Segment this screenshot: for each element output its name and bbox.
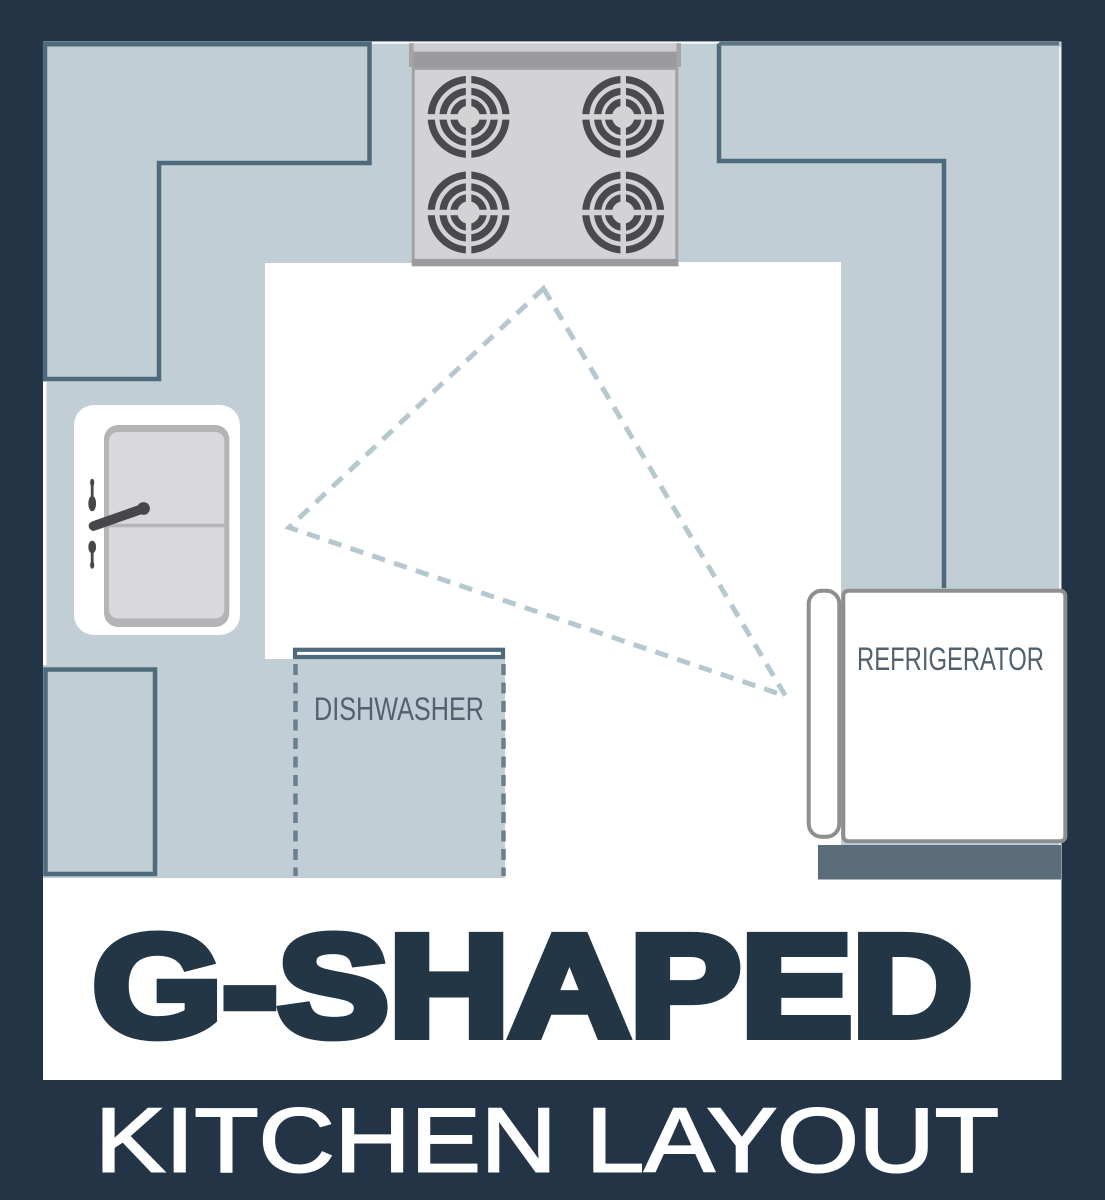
svg-text:REFRIGERATOR: REFRIGERATOR — [857, 641, 1044, 677]
svg-text:KITCHEN LAYOUT: KITCHEN LAYOUT — [95, 1090, 999, 1191]
svg-text:G-SHAPED: G-SHAPED — [93, 906, 973, 1067]
svg-text:DISHWASHER: DISHWASHER — [314, 691, 484, 727]
